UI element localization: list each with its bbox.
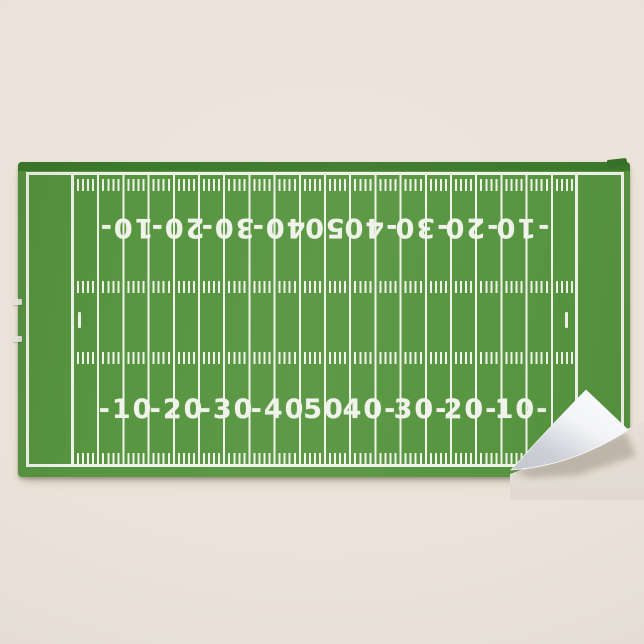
yard-number: -20 [150,397,205,423]
yard-number: -30 [394,214,449,240]
yard-number: -20 [444,214,499,240]
hash-marks-top-sideline [72,179,578,191]
yard-number: 30- [394,397,449,423]
yard-number: 10- [99,214,154,240]
hash-marks-lower-inbound [72,352,578,364]
hash-marks-upper-inbound [72,281,578,293]
towel-side-tag [13,299,22,305]
yard-number: 40- [251,214,306,240]
yard-number: -10 [495,214,550,240]
towel-top-hem [18,162,630,171]
folded-corner [490,370,644,500]
yard-number: -30 [200,397,255,423]
yard-number: 50 [303,214,345,240]
conversion-mark-right [565,312,568,328]
yard-number: 20- [150,214,205,240]
product-photo: 10- 20- 30- 40- 50 -40 -30 -20 -10 -10 -… [0,0,644,644]
conversion-mark-left [78,312,81,328]
yard-number: -40 [251,397,306,423]
yard-number: -40 [343,214,398,240]
yard-number: -10 [99,397,154,423]
yard-number: 30- [200,214,255,240]
goal-line-left [71,172,74,467]
towel-side-tag [13,336,22,342]
yard-number: 40- [343,397,398,423]
yard-number: 50 [303,397,345,423]
